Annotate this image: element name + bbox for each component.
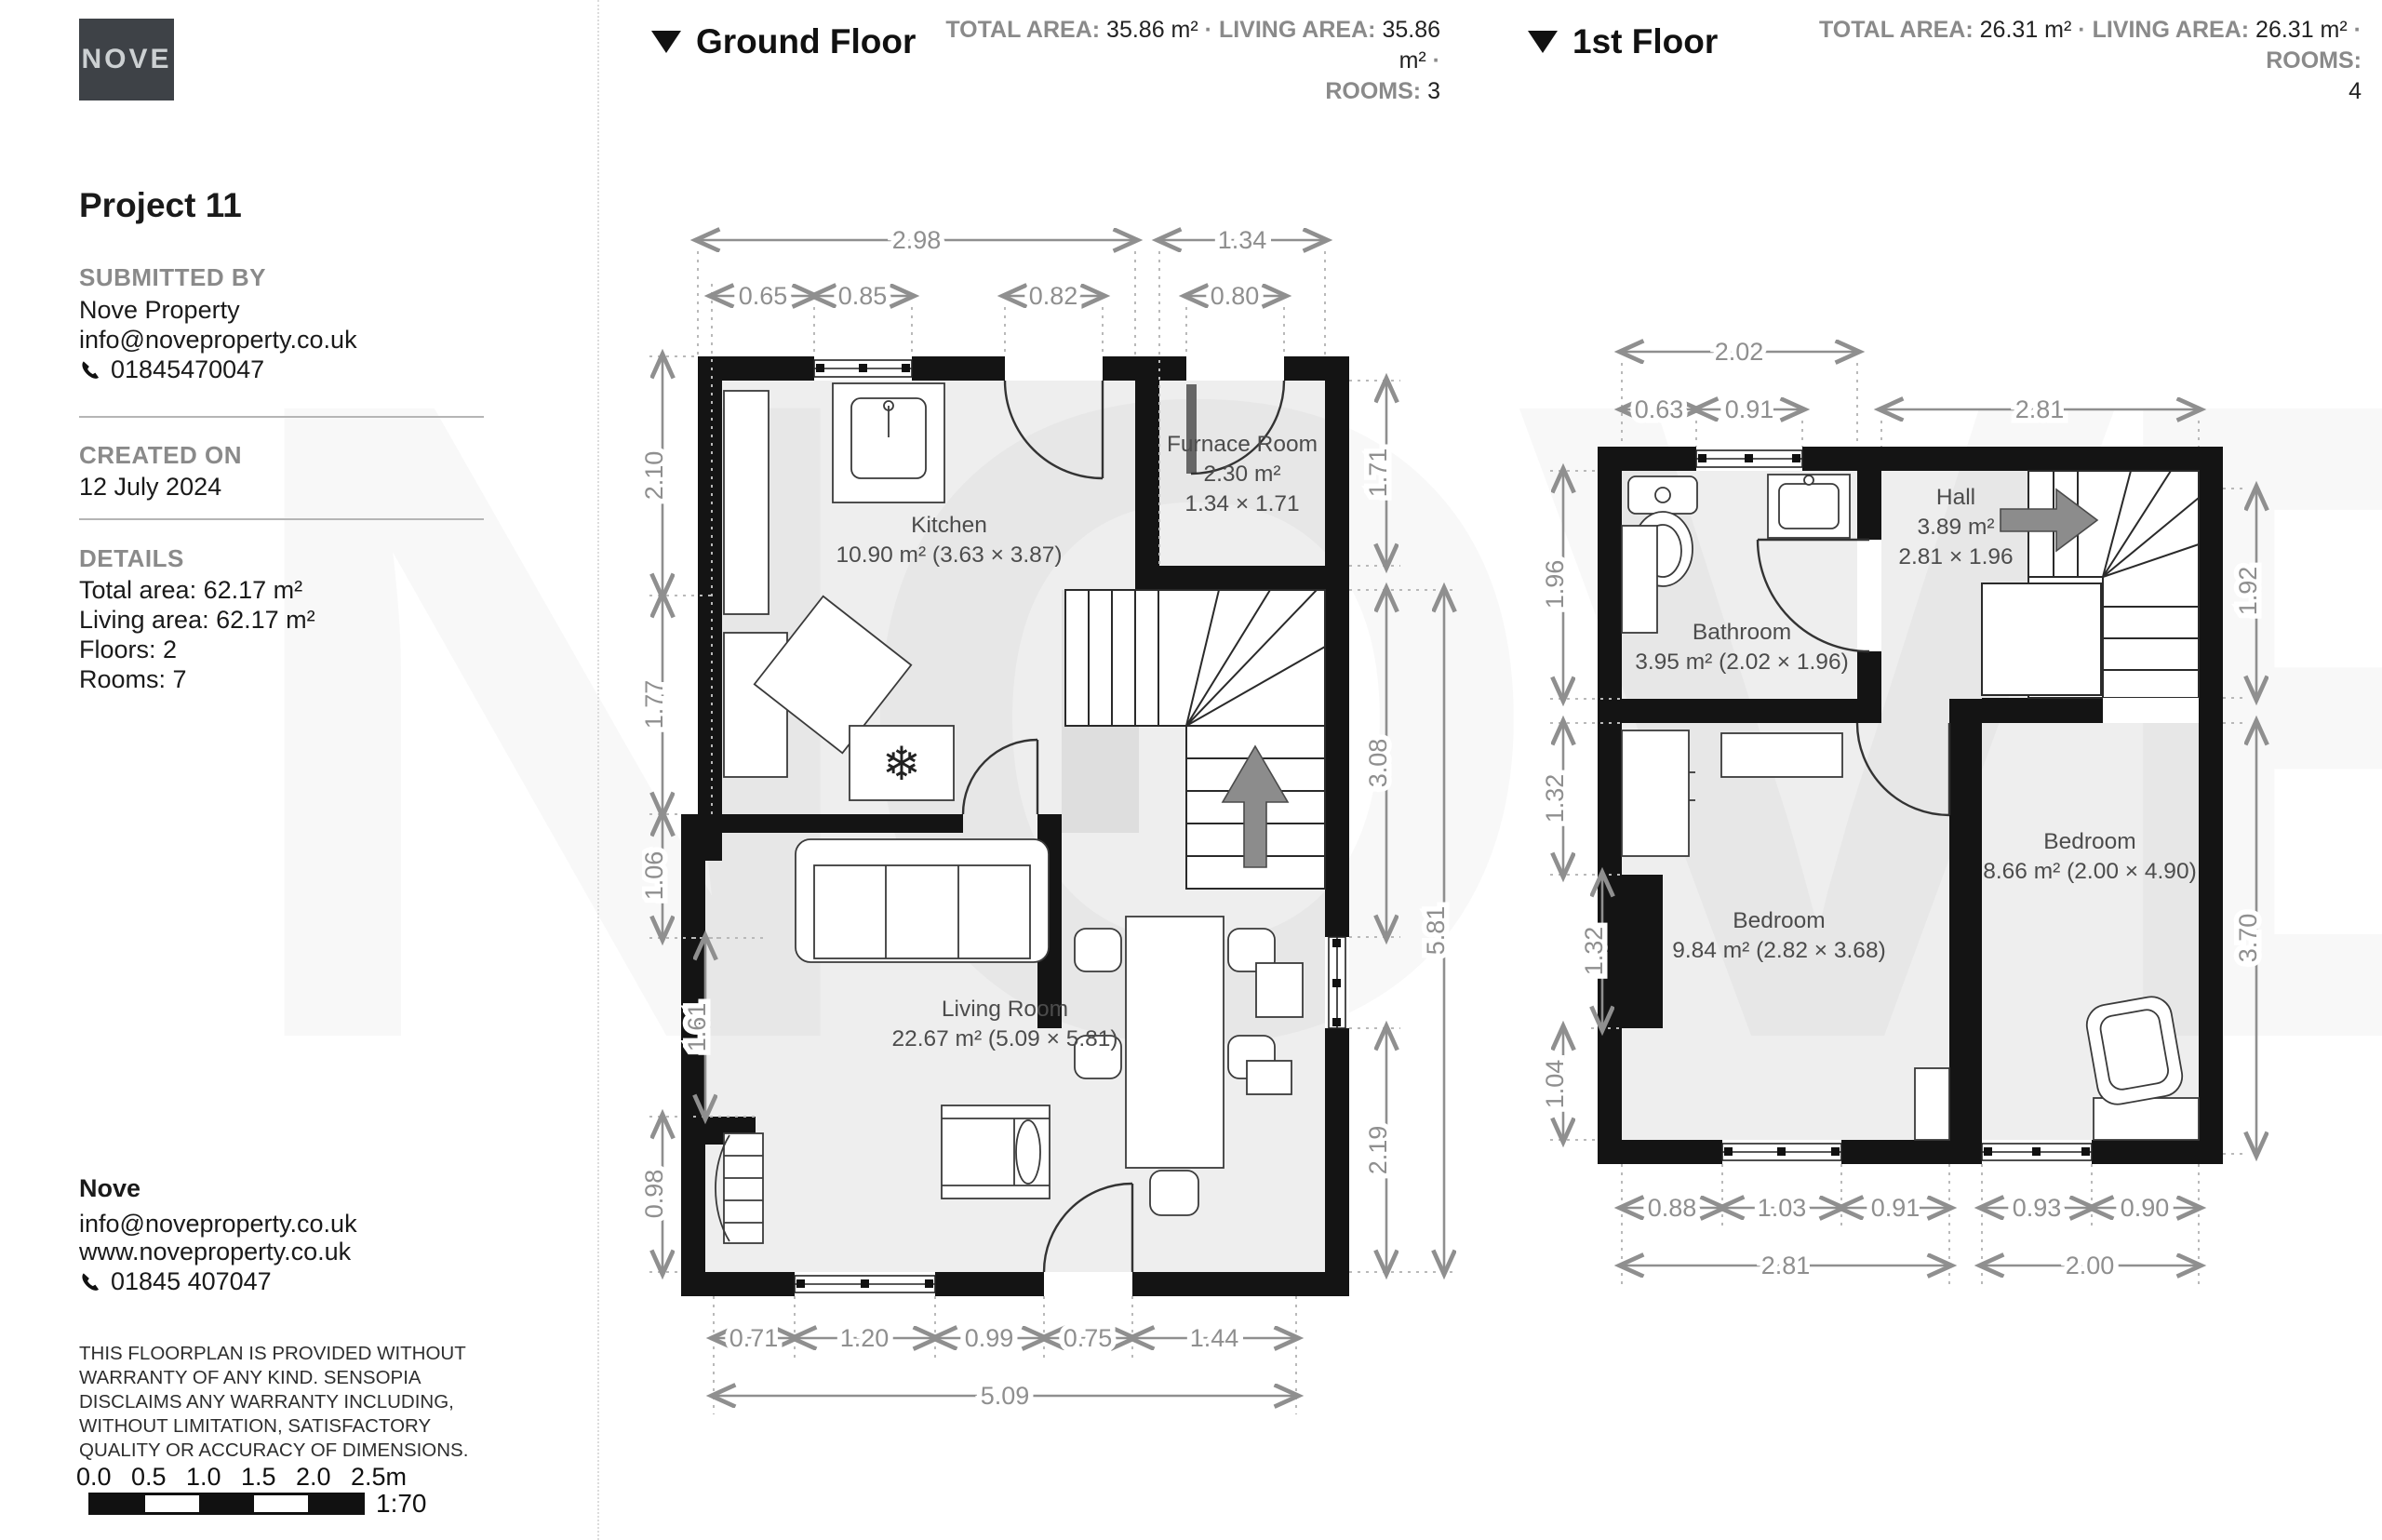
dim-label: 2.81 [2015, 395, 2065, 423]
room-size: 2.81 × 1.96 [1898, 544, 2013, 569]
room-name: Hall [1936, 485, 1975, 510]
room-name: Furnace Room [1167, 432, 1318, 457]
total-area-value: 35.86 m² [1106, 17, 1198, 43]
nove-logo: NOVE [79, 19, 174, 100]
dim-label: 5.09 [981, 1382, 1030, 1410]
room-area: 3.89 m² [1917, 515, 1994, 540]
footer-phone-row: 01845 407047 [79, 1267, 272, 1296]
dim-label: 2.81 [1761, 1252, 1811, 1279]
dim-label: 1.03 [1758, 1194, 1807, 1222]
scale-tick: 1.5 [241, 1463, 276, 1492]
dim-label: 0.85 [838, 282, 888, 310]
living-area-value: 35.86 m² [1382, 17, 1440, 74]
dim-label: 0.98 [642, 1170, 668, 1219]
ground-floor-stats: TOTAL AREA: 35.86 m² · LIVING AREA: 35.8… [921, 15, 1440, 107]
scale-tick: 2.5m [351, 1463, 407, 1492]
dim-label: 1.06 [642, 851, 668, 901]
details-floors: Floors: 2 [79, 636, 177, 664]
total-area-label: TOTAL AREA: [1819, 17, 1974, 43]
dim-label: 1.92 [2234, 567, 2262, 616]
dim-label: 3.70 [2234, 914, 2262, 963]
sidebar-divider [597, 0, 599, 1540]
page-title: Project 11 [79, 186, 242, 225]
dim-label: 0.91 [1725, 395, 1774, 423]
dim-label: 0.90 [2121, 1194, 2170, 1222]
rooms-label: ROOMS: [1325, 78, 1421, 104]
dim-label: 3.08 [1364, 739, 1392, 788]
created-on-heading: CREATED ON [79, 441, 242, 470]
window [1325, 937, 1349, 1028]
separator: · [1433, 47, 1440, 74]
ground-floor-plan: ❄ Kitchen 10.90 m² (3.63 × 3.87) Furnace… [642, 130, 1489, 1414]
dim-label: 1.44 [1190, 1324, 1239, 1352]
dim-label: 2.10 [642, 451, 668, 501]
room-name: Kitchen [911, 513, 987, 538]
window [1696, 447, 1802, 471]
divider-line [79, 416, 484, 418]
scale-tick: 0.5 [131, 1463, 167, 1492]
dim-label: 1.61 [683, 1003, 711, 1052]
room-name: Bedroom [1733, 908, 1825, 933]
rooms-value: 4 [2349, 78, 2362, 104]
first-floor-plan: Hall 3.89 m² 2.81 × 1.96 Bathroom 3.95 m… [1535, 130, 2298, 1414]
dim-label: 5.81 [1422, 906, 1450, 956]
ground-floor-header: Ground Floor [651, 22, 916, 61]
dim-label: 1.96 [1541, 560, 1569, 609]
dim-label: 0.63 [1635, 395, 1684, 423]
scale-ratio: 1:70 [376, 1489, 427, 1519]
room-detail: 3.95 m² (2.02 × 1.96) [1635, 649, 1848, 675]
dim-label: 2.02 [1715, 338, 1764, 366]
living-area-value: 26.31 m² [2255, 17, 2348, 43]
living-area-label: LIVING AREA: [2093, 17, 2250, 43]
dim-label: 0.88 [1648, 1194, 1697, 1222]
first-floor-stats: TOTAL AREA: 26.31 m² · LIVING AREA: 26.3… [1766, 15, 2362, 107]
window [1982, 1140, 2092, 1164]
phone-icon [79, 1271, 101, 1293]
phone-icon [79, 359, 101, 382]
submitted-by-phone: 01845470047 [111, 355, 264, 384]
submitted-by-phone-row: 01845470047 [79, 355, 264, 384]
dim-label: 1.32 [1580, 927, 1608, 976]
dim-label: 0.80 [1211, 282, 1260, 310]
footer-website: www.noveproperty.co.uk [79, 1238, 351, 1266]
dim-label: 1.32 [1541, 774, 1569, 824]
triangle-marker-icon [651, 31, 681, 53]
details-heading: DETAILS [79, 544, 184, 573]
created-on-date: 12 July 2024 [79, 473, 221, 502]
dim-label: 1.77 [642, 680, 668, 730]
details-living-area: Living area: 62.17 m² [79, 606, 315, 635]
dim-label: 0.82 [1029, 282, 1078, 310]
scale-tick: 2.0 [296, 1463, 331, 1492]
dim-label: 0.91 [1871, 1194, 1920, 1222]
dim-label: 1.04 [1541, 1060, 1569, 1109]
footer-company: Nove [79, 1174, 141, 1203]
submitted-by-email: info@noveproperty.co.uk [79, 326, 357, 355]
dim-label: 1.71 [1364, 449, 1392, 498]
details-total-area: Total area: 62.17 m² [79, 576, 302, 605]
room-detail: 10.90 m² (3.63 × 3.87) [836, 542, 1062, 568]
logo-text: NOVE [81, 44, 171, 75]
triangle-marker-icon [1528, 31, 1558, 53]
staircase [1982, 471, 2199, 723]
separator: · [1205, 17, 1212, 43]
rooms-value: 3 [1427, 78, 1440, 104]
room-area: 2.30 m² [1203, 462, 1280, 487]
dim-label: 2.19 [1364, 1126, 1392, 1175]
dim-label: 0.99 [965, 1324, 1014, 1352]
details-rooms: Rooms: 7 [79, 665, 187, 694]
ground-floor-title: Ground Floor [696, 22, 916, 61]
room-detail: 22.67 m² (5.09 × 5.81) [891, 1026, 1117, 1051]
window [1722, 1140, 1841, 1164]
fridge-snowflake-icon: ❄ [882, 738, 921, 790]
scale-bar [88, 1493, 365, 1515]
dim-label: 0.65 [739, 282, 788, 310]
window [814, 356, 912, 381]
dim-label: 0.93 [2013, 1194, 2062, 1222]
dim-label: 1.20 [840, 1324, 890, 1352]
submitted-by-name: Nove Property [79, 296, 240, 325]
window [795, 1272, 935, 1296]
room-detail: 8.66 m² (2.00 × 4.90) [1983, 859, 2196, 884]
room-detail: 9.84 m² (2.82 × 3.68) [1672, 938, 1885, 963]
total-area-label: TOTAL AREA: [945, 17, 1100, 43]
living-area-label: LIVING AREA: [1219, 17, 1376, 43]
rooms-label: ROOMS: [2266, 47, 2362, 74]
dim-label: 1.34 [1218, 226, 1267, 254]
separator: · [2078, 17, 2085, 43]
first-floor-title: 1st Floor [1572, 22, 1718, 61]
dim-label: 0.71 [729, 1324, 779, 1352]
submitted-by-heading: SUBMITTED BY [79, 263, 266, 292]
first-floor-header: 1st Floor [1528, 22, 1718, 61]
room-size: 1.34 × 1.71 [1184, 491, 1299, 516]
scale-tick: 1.0 [186, 1463, 221, 1492]
total-area-value: 26.31 m² [1980, 17, 2072, 43]
dim-label: 0.75 [1064, 1324, 1113, 1352]
room-name: Living Room [942, 997, 1068, 1022]
dim-label: 2.98 [892, 226, 942, 254]
room-name: Bathroom [1693, 620, 1791, 645]
room-name: Bedroom [2043, 829, 2135, 854]
footer-phone: 01845 407047 [111, 1267, 272, 1296]
footer-email: info@noveproperty.co.uk [79, 1210, 357, 1239]
divider-line [79, 518, 484, 520]
disclaimer-text: THIS FLOORPLAN IS PROVIDED WITHOUT WARRA… [79, 1342, 502, 1463]
scale-tick: 0.0 [76, 1463, 112, 1492]
separator: · [2354, 17, 2362, 43]
dim-label: 2.00 [2066, 1252, 2115, 1279]
